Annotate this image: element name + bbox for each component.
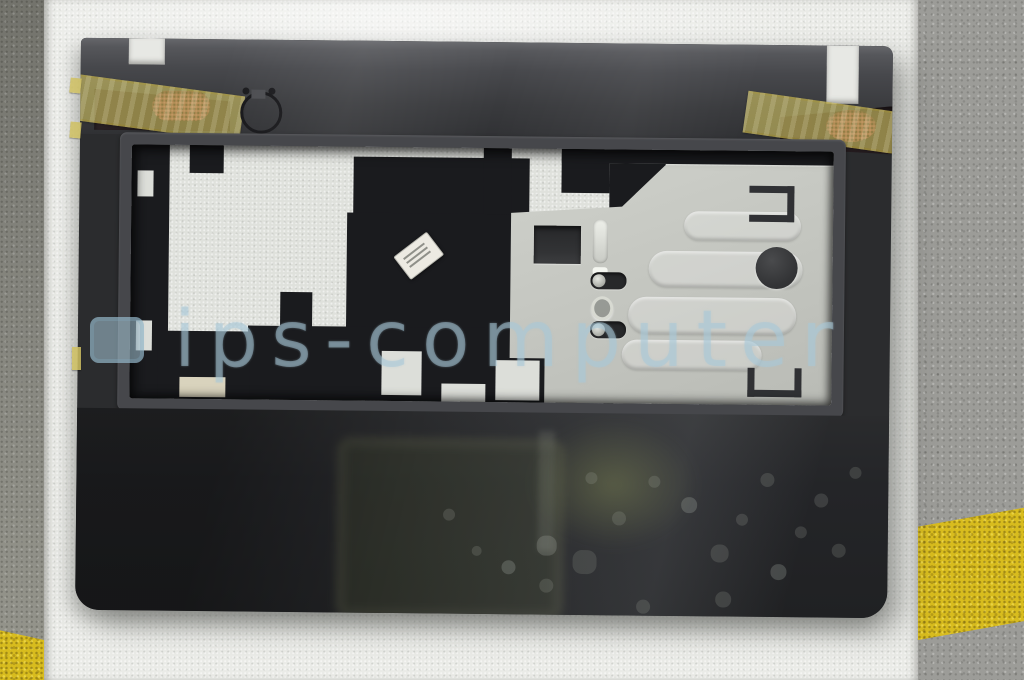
tape-wrap-edge-2 xyxy=(69,122,81,139)
plate-stamped-rib-4 xyxy=(622,339,762,370)
plate-round-hole xyxy=(755,247,797,289)
tape-wrap-edge-1 xyxy=(69,77,82,93)
chassis-small-block xyxy=(280,292,312,330)
laptop-palmrest-part xyxy=(75,38,893,618)
plate-vertical-slot xyxy=(593,219,608,263)
plate-stamped-rib-3 xyxy=(628,297,796,336)
palm-sheen xyxy=(75,408,889,618)
chassis-rib-top-step xyxy=(190,145,224,173)
tape-wrap-edge-3 xyxy=(72,347,81,370)
foam-gap-1 xyxy=(381,351,421,395)
connector-tab xyxy=(179,377,225,397)
keyboard-aperture-interior xyxy=(129,144,834,405)
photo-scene: ips-computer xyxy=(0,0,1024,680)
plate-small-hole xyxy=(591,296,613,320)
concrete-floor-left-strip xyxy=(0,0,44,680)
keyboard-aperture-frame xyxy=(117,132,846,418)
screw-head xyxy=(592,274,605,287)
plate-bracket-cutout-bottom xyxy=(747,368,801,398)
chassis-clip-upper xyxy=(137,170,153,196)
plate-screw-slot-upper xyxy=(590,272,626,289)
chassis-rib-column xyxy=(483,148,512,214)
chassis-clip-lower xyxy=(136,320,152,350)
top-band-sheen xyxy=(80,38,893,142)
yellow-stripe-right xyxy=(918,505,1024,640)
foam-gap-2 xyxy=(441,384,485,402)
touchpad-support-plate xyxy=(501,156,834,405)
foam-gap-3 xyxy=(495,360,539,400)
plate-screw-slot-lower xyxy=(590,321,626,338)
plate-window-cutout xyxy=(534,226,581,264)
chassis-rib-top-edge xyxy=(562,149,834,166)
screw-head xyxy=(592,323,605,336)
water-droplet-marks xyxy=(81,38,87,44)
chassis-center-block xyxy=(346,213,515,341)
plate-bracket-cutout-top xyxy=(749,186,794,222)
